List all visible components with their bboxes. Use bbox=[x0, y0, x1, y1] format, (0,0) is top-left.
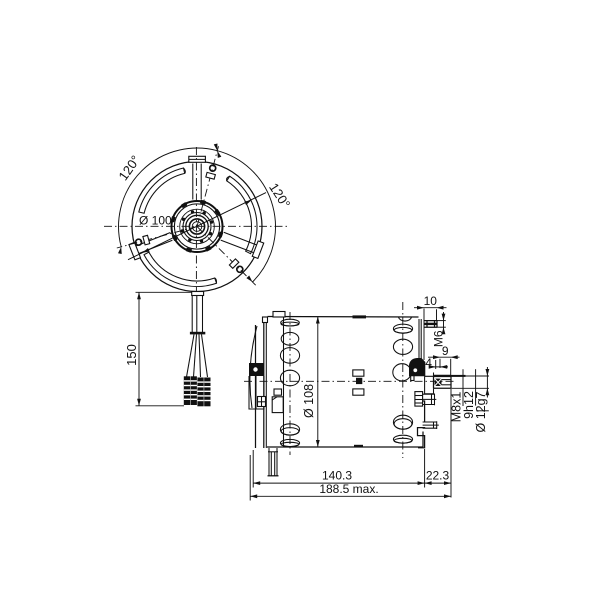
svg-text:188.5 max.: 188.5 max. bbox=[319, 482, 378, 496]
svg-text:10: 10 bbox=[424, 294, 438, 308]
svg-text:9: 9 bbox=[442, 344, 449, 358]
svg-text:Ø 108: Ø 108 bbox=[302, 384, 316, 418]
svg-text:150: 150 bbox=[124, 344, 139, 366]
svg-text:140.3: 140.3 bbox=[322, 469, 352, 483]
svg-text:Ø 100: Ø 100 bbox=[139, 214, 172, 228]
svg-text:Ø 12g7: Ø 12g7 bbox=[474, 391, 488, 432]
svg-text:22.3: 22.3 bbox=[426, 469, 450, 483]
svg-text:4: 4 bbox=[425, 356, 432, 370]
